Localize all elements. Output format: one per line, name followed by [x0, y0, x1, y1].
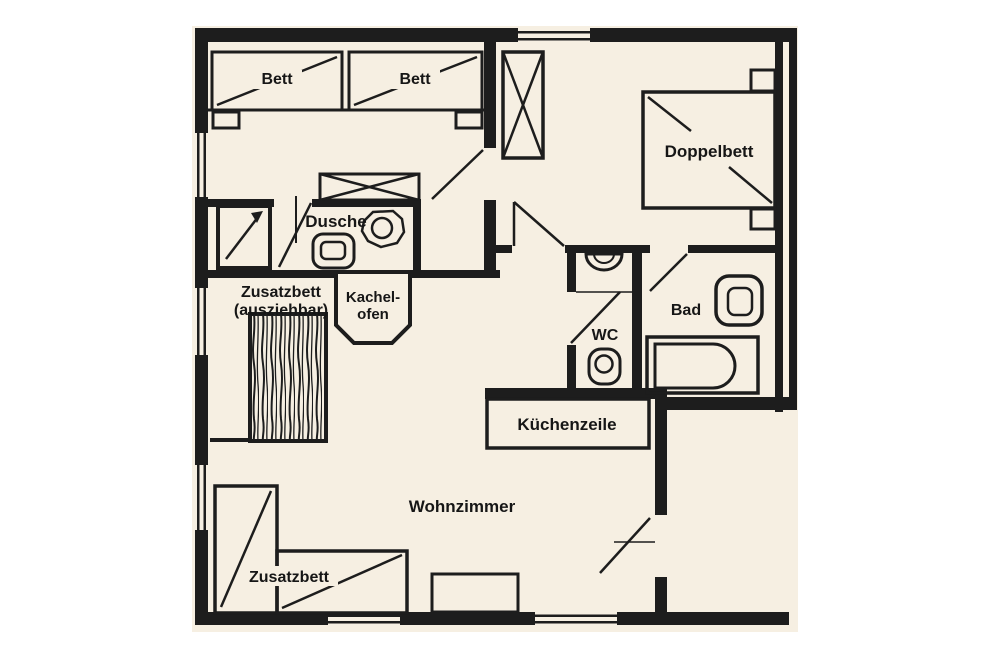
label-kachelofen-line1: Kachel- — [346, 289, 400, 306]
wall-divider-upper — [484, 42, 496, 148]
label-zusatzbett-line2: (ausziehbar) — [234, 302, 328, 319]
label-kuechenzeile: Küchenzeile — [517, 415, 616, 434]
wall-master-south-b — [565, 245, 650, 253]
wall-living-east-upper — [655, 410, 667, 515]
wall-master-south-a — [484, 245, 512, 253]
wall-living-east-lower — [655, 577, 667, 612]
label-bett-1: Bett — [261, 71, 293, 88]
floor-plan-page: Bett Bett Doppelbett Dusche Zusatzbett (… — [0, 0, 990, 660]
window-top — [518, 28, 590, 42]
label-doppelbett: Doppelbett — [665, 142, 754, 161]
wall-right-outer — [789, 28, 797, 410]
window-left-1 — [195, 133, 208, 197]
wall-shower-east — [413, 199, 421, 278]
label-dusche: Dusche — [305, 212, 366, 231]
label-zusatzbett-sofa: Zusatzbett — [249, 569, 330, 586]
wall-step — [655, 397, 797, 410]
label-bad: Bad — [671, 302, 701, 319]
wall-top — [195, 28, 789, 42]
floor-plan-drawing: Bett Bett Doppelbett Dusche Zusatzbett (… — [0, 0, 990, 660]
window-left-2 — [195, 288, 208, 355]
window-left-3 — [195, 465, 208, 530]
window-bottom-2 — [535, 612, 617, 625]
wall-wc-east — [632, 253, 642, 392]
label-zusatzbett-line1: Zusatzbett — [241, 284, 322, 301]
label-kachelofen-line2: ofen — [357, 306, 389, 323]
wall-divider-lower — [484, 200, 496, 275]
wall-master-south-c — [688, 245, 775, 253]
label-wohnzimmer: Wohnzimmer — [409, 497, 516, 516]
label-bett-2: Bett — [399, 71, 431, 88]
wall-wc-west-b — [567, 345, 576, 392]
label-wc: WC — [592, 327, 619, 344]
wall-wc-west-a — [567, 253, 576, 292]
